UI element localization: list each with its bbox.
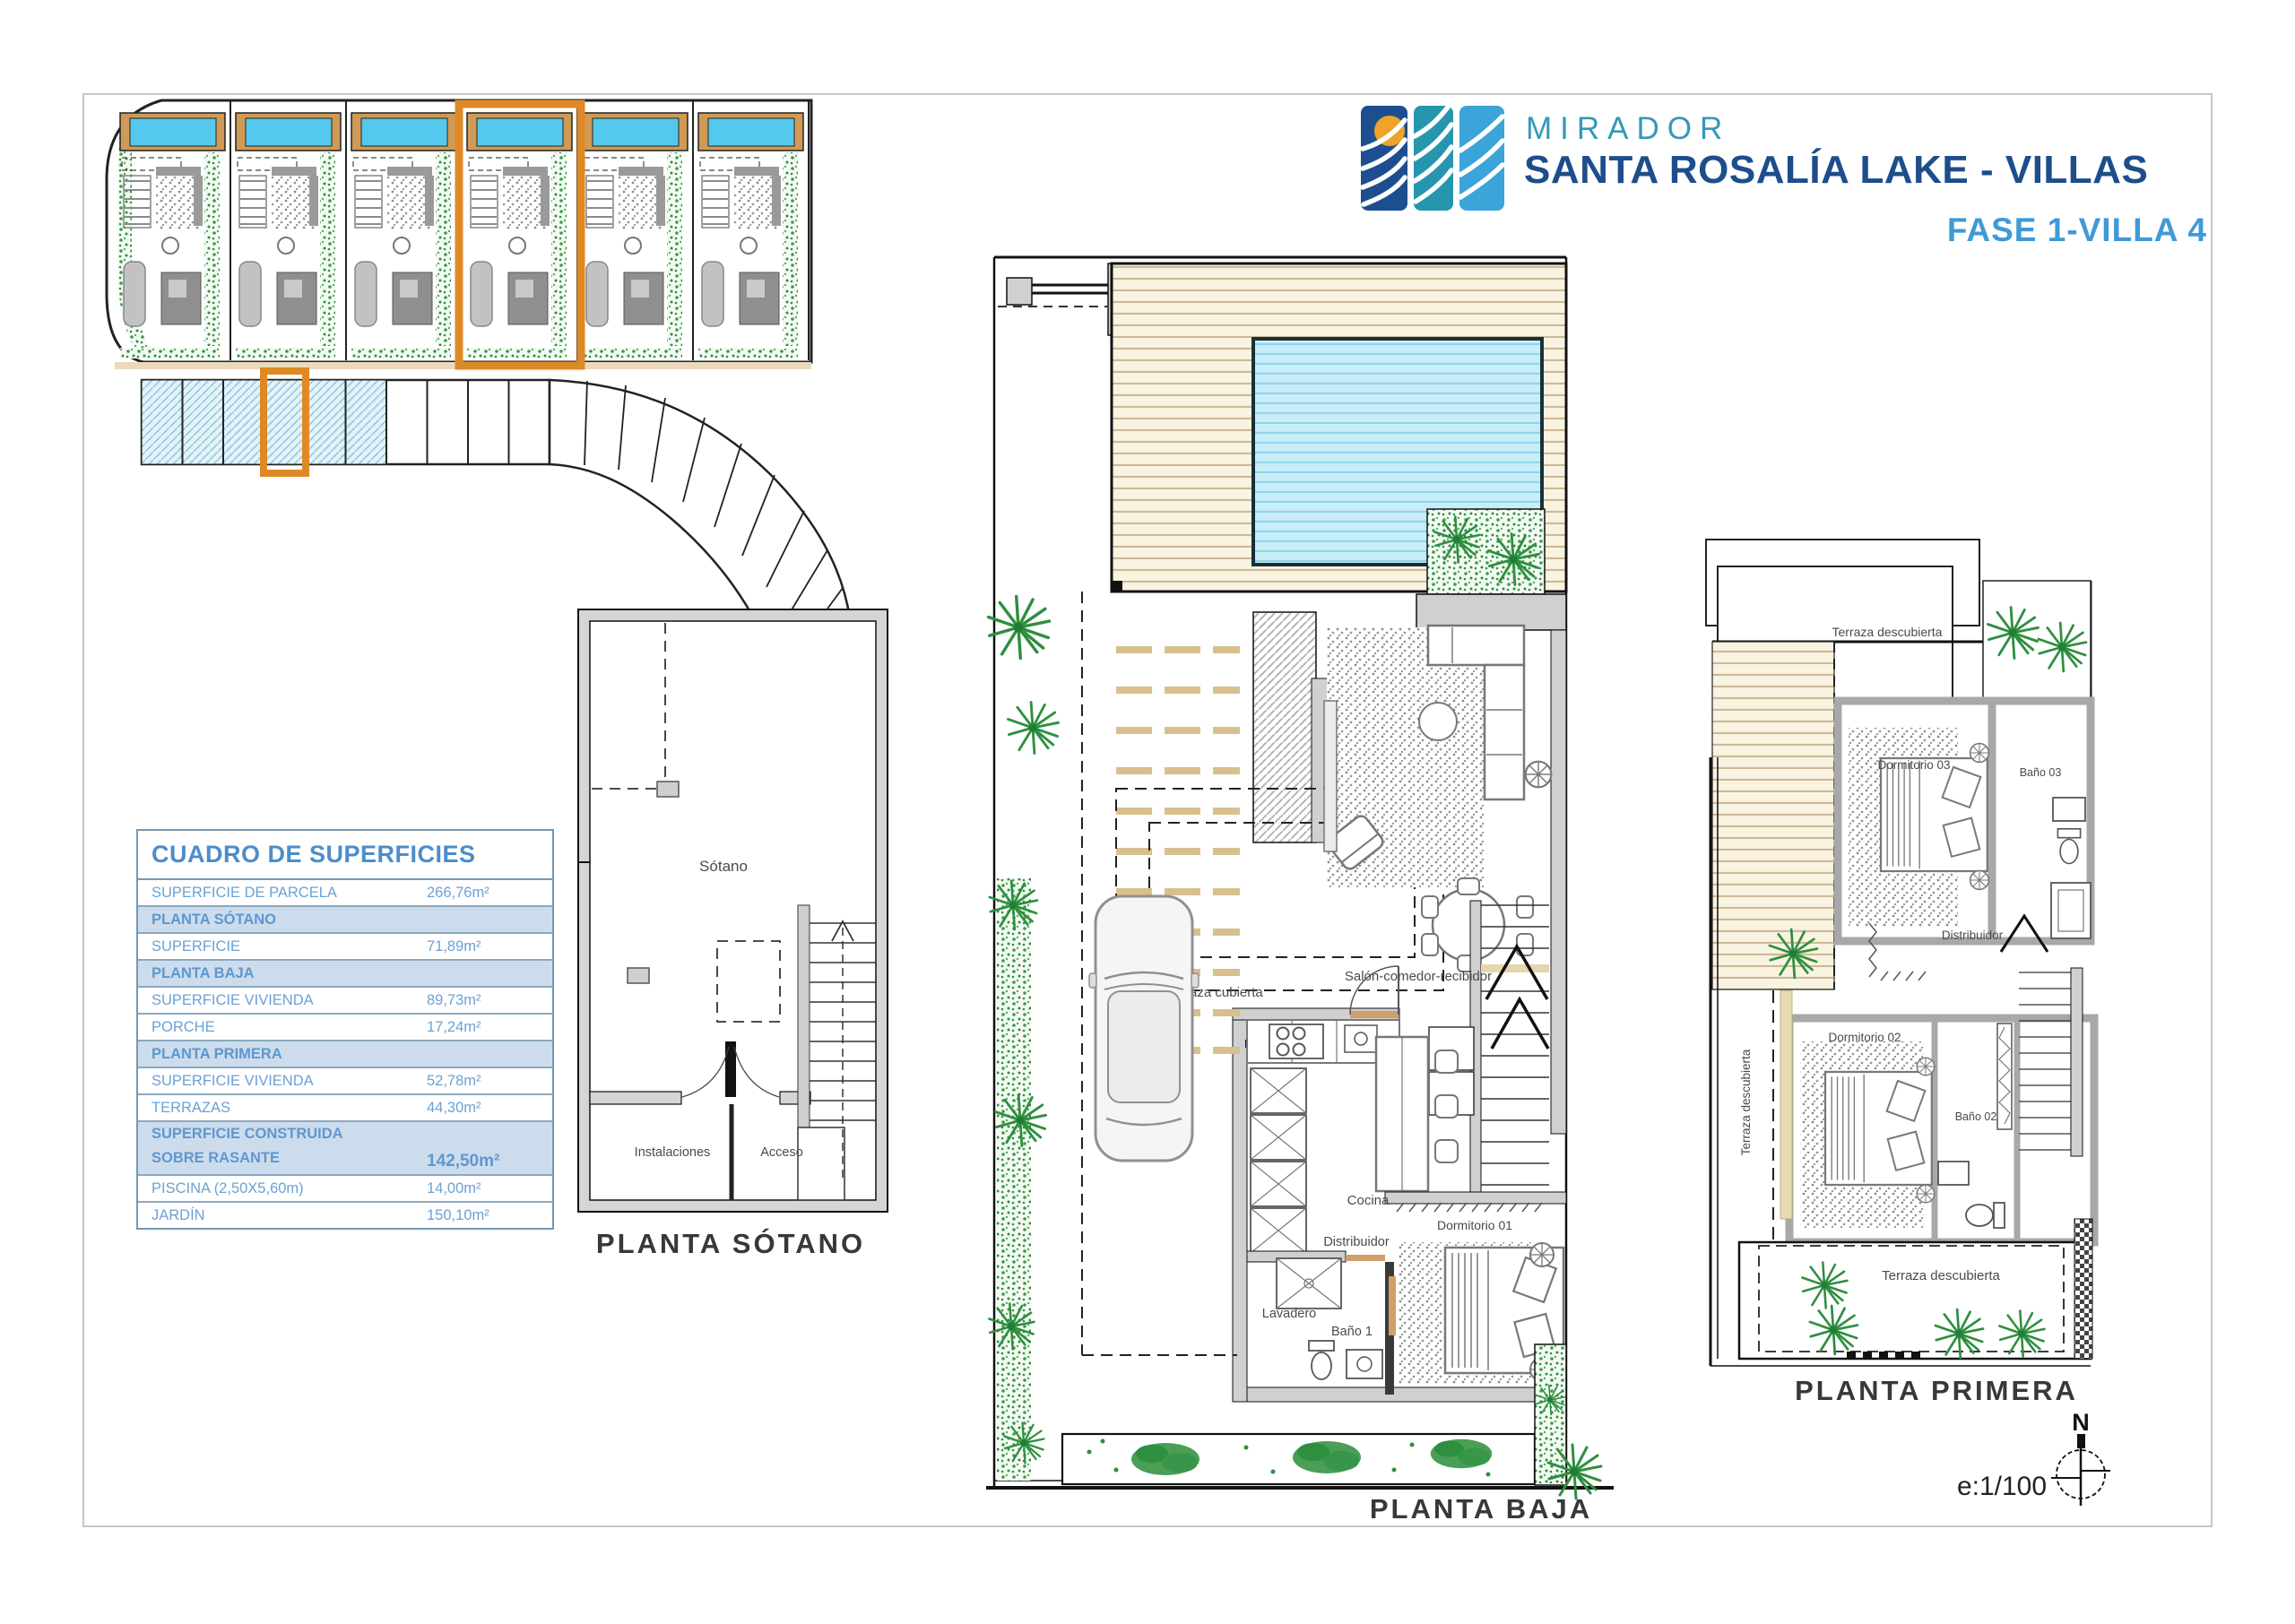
label-sotano-room: Sótano [699, 858, 748, 875]
label-terraza-top: Terraza descubierta [1832, 625, 1943, 639]
label-instalaciones: Instalaciones [635, 1145, 711, 1160]
label-terraza-left: Terraza descubierta [1739, 1049, 1753, 1155]
label-terraza-bottom: Terraza descubierta [1882, 1268, 2000, 1283]
car [1089, 896, 1199, 1161]
plan-sotano: Sótano Instalaciones Acceso PLANTA SÓTAN… [578, 609, 888, 1259]
table-row: SUPERFICIE VIVIENDA 52,78m² [138, 1068, 552, 1095]
site-plan [107, 100, 850, 665]
plan-baja: Terraza cubierta Salón-comedor-recibidor… [986, 257, 1614, 1525]
compass: N e:1/100 [1957, 1409, 2110, 1506]
label-acceso: Acceso [760, 1145, 803, 1160]
table-section-row: PLANTA SÓTANO [138, 907, 552, 934]
table-row: SUPERFICIE VIVIENDA 89,73m² [138, 988, 552, 1015]
label-dormitorio02: Dormitorio 02 [1828, 1031, 1901, 1044]
caption-planta-baja: PLANTA BAJA [1370, 1493, 1592, 1525]
table-section-row: PLANTA BAJA [138, 961, 552, 988]
table-row: PORCHE 17,24m² [138, 1015, 552, 1041]
table-row: JARDÍN 150,10m² [138, 1203, 552, 1228]
scale-label: e:1/100 [1957, 1472, 2047, 1501]
label-bano03: Baño 03 [2020, 766, 2062, 779]
label-salon: Salón-comedor-recibidor [1345, 969, 1492, 984]
table-row: SUPERFICIE 71,89m² [138, 934, 552, 961]
column [628, 968, 649, 983]
plan-primera: Terraza descubierta Dormitorio 03 Baño 0… [1706, 540, 2094, 1406]
label-cocina: Cocina [1347, 1193, 1390, 1208]
brand-line1: MIRADOR [1526, 111, 1730, 147]
garden-strip [997, 878, 1031, 1481]
label-bano1: Baño 1 [1331, 1325, 1373, 1339]
caption-planta-sotano: PLANTA SÓTANO [596, 1227, 865, 1259]
phase-label: FASE 1-VILLA 4 [1793, 212, 2207, 249]
label-dormitorio03: Dormitorio 03 [1877, 758, 1950, 772]
table-row: SUPERFICIE DE PARCELA 266,76m² [138, 880, 552, 907]
brand-logo-icon [1361, 102, 1504, 211]
label-lavadero: Lavadero [1262, 1307, 1316, 1321]
table-row: PISCINA (2,50X5,60m) 14,00m² [138, 1176, 552, 1203]
areas-table-title: CUADRO DE SUPERFICIES [138, 831, 552, 880]
north-label: N [2072, 1409, 2090, 1436]
caption-planta-primera: PLANTA PRIMERA [1795, 1375, 2078, 1406]
label-bano02: Baño 02 [1955, 1110, 1997, 1123]
label-distribuidor-primera: Distribuidor [1942, 929, 2004, 942]
table-section-row: PLANTA PRIMERA [138, 1041, 552, 1068]
column [657, 782, 679, 797]
plan-sheet: Sótano Instalaciones Acceso PLANTA SÓTAN… [0, 0, 2295, 1624]
label-distribuidor-baja: Distribuidor [1323, 1235, 1389, 1249]
label-dormitorio01: Dormitorio 01 [1437, 1218, 1512, 1232]
north-needle-icon [2077, 1434, 2085, 1448]
table-row: TERRAZAS 44,30m² [138, 1095, 552, 1122]
brand-line2: SANTA ROSALÍA LAKE - VILLAS [1524, 148, 2148, 193]
areas-table: CUADRO DE SUPERFICIES SUPERFICIE DE PARC… [136, 829, 554, 1230]
table-total-row: SUPERFICIE CONSTRUIDA SOBRE RASANTE 142,… [138, 1122, 552, 1176]
